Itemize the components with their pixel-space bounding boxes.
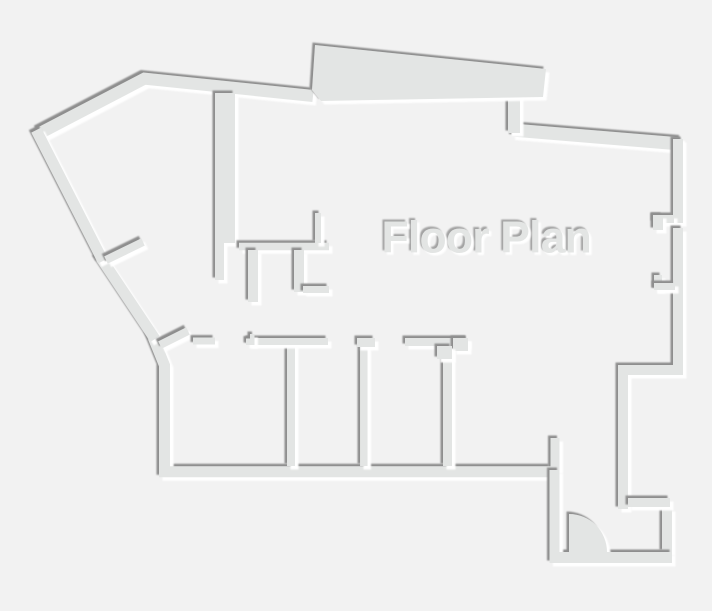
svg-text:Floor Plan: Floor Plan [382,214,592,263]
